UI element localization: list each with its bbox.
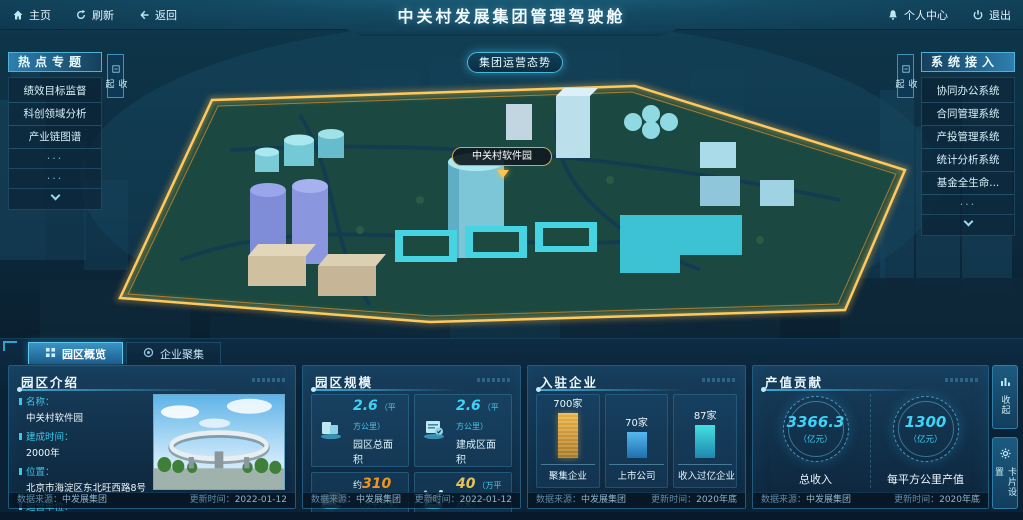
bottom-dashboard: 园区概览 企业聚集 园区介绍 名称：中关村软件园 建成时间：2000年 位置：北…	[0, 338, 1023, 520]
bar-item-clustered: 700家 聚集企业	[536, 394, 600, 488]
bar-item-listed: 70家 上市公司	[605, 394, 669, 488]
gauge-total-revenue: 3366.3 （亿元） 总收入	[761, 394, 870, 488]
back-button[interactable]: 返回	[138, 7, 177, 23]
field-label: 名称：	[19, 394, 147, 408]
bar-blue	[627, 432, 647, 458]
title-underline	[313, 389, 510, 391]
menu-item-contract-mgmt-system[interactable]: 合同管理系统	[922, 103, 1014, 126]
bar-category-label: 聚集企业	[541, 464, 595, 487]
resident-enterprises-panel: 入驻企业 700家 聚集企业 70家 上市公司 87家	[527, 365, 746, 509]
tab-enterprise-cluster[interactable]: 企业聚集	[126, 342, 221, 364]
collapse-label: 收起	[103, 79, 129, 97]
enterprise-bar-chart: 700家 聚集企业 70家 上市公司 87家 收入过亿企业	[536, 394, 737, 488]
card-settings-label: 卡片设置	[992, 467, 1018, 503]
park-scale-panel: 园区规模 2.6（平方公里）园区总面积 2.6（平方公里）建成区面积 约310（…	[302, 365, 521, 509]
back-arrow-icon	[138, 9, 150, 21]
more-items-placeholder[interactable]: ···	[922, 195, 1014, 215]
back-label: 返回	[155, 7, 177, 23]
more-items-placeholder[interactable]: ···	[9, 149, 101, 169]
dashboard-root: 主页 刷新 返回 中关村发展集团管理驾驶舱 个人中心 退出	[0, 0, 1023, 520]
chevron-down-icon	[963, 217, 973, 227]
park-map-label[interactable]: 中关村软件园	[452, 147, 552, 166]
menu-item-industry-chain-map[interactable]: 产业链图谱	[9, 126, 101, 149]
gauge-unit: （亿元）	[798, 433, 832, 445]
header-decoration	[477, 378, 511, 382]
panel-footer: 数据来源：中发展集团 更新时间：2022-01-12	[9, 492, 295, 508]
collapse-label: 收起	[893, 79, 919, 97]
menu-item-industry-invest-system[interactable]: 产投管理系统	[922, 126, 1014, 149]
logout-button[interactable]: 退出	[972, 7, 1011, 23]
bar-cyan	[695, 425, 715, 458]
buildings-icon	[319, 417, 346, 445]
refresh-icon	[75, 9, 87, 21]
ring-icon	[143, 347, 154, 361]
map-3d-scene[interactable]: 集团运营态势 中关村软件园 热点专题 收起 绩效目标监督 科创领域分析 产业链图…	[0, 30, 1023, 338]
park-photo	[153, 394, 285, 490]
home-button[interactable]: 主页	[12, 7, 51, 23]
collapse-label: 收起	[999, 395, 1012, 415]
header-decoration	[945, 378, 979, 382]
home-icon	[12, 9, 24, 21]
system-access-panel: 系统接入 收起 协同办公系统 合同管理系统 产投管理系统 统计分析系统 基金全生…	[897, 52, 1015, 236]
gauge-unit: （亿元）	[908, 433, 942, 445]
menu-item-fund-lifecycle-system[interactable]: 基金全生命...	[922, 172, 1014, 195]
gauge-output-per-sqkm: 1300 （亿元） 每平方公里产值	[870, 394, 980, 488]
panel-footer: 数据来源：中发展集团 更新时间：2022-01-12	[303, 492, 520, 508]
gauge-ring: 1300 （亿元）	[893, 396, 959, 462]
personal-center-label: 个人中心	[904, 7, 948, 23]
bottom-tabs: 园区概览 企业聚集	[28, 342, 221, 364]
system-access-title: 系统接入	[921, 52, 1015, 72]
field-label: 位置：	[19, 464, 147, 478]
stat-card-total-area: 2.6（平方公里）园区总面积	[311, 394, 409, 467]
map-pin-icon	[497, 170, 509, 184]
gear-icon	[1000, 444, 1011, 463]
personal-center-button[interactable]: 个人中心	[887, 7, 948, 23]
bar-chart-icon	[1000, 372, 1011, 391]
gauge-ring: 3366.3 （亿元）	[783, 396, 849, 462]
refresh-label: 刷新	[92, 7, 114, 23]
field-label: 建成时间：	[19, 429, 147, 443]
menu-item-collab-office-system[interactable]: 协同办公系统	[922, 80, 1014, 103]
power-icon	[972, 9, 984, 21]
menu-item-performance-goals[interactable]: 绩效目标监督	[9, 80, 101, 103]
gauge-value: 1300	[905, 413, 947, 431]
expand-more-button[interactable]	[922, 215, 1014, 231]
group-operation-status-button[interactable]: 集团运营态势	[467, 52, 563, 73]
field-value: 中关村软件园	[26, 410, 147, 424]
title-underline	[538, 389, 735, 391]
output-value-panel: 产值贡献 3366.3 （亿元） 总收入 1300 （亿元）	[752, 365, 989, 509]
header-decoration	[252, 378, 286, 382]
bar-category-label: 收入过亿企业	[678, 464, 732, 487]
collapse-icon	[112, 58, 120, 77]
city-map-graphic	[0, 30, 1023, 338]
gauge-label: 总收入	[799, 471, 832, 487]
expand-more-button[interactable]	[9, 189, 101, 205]
bar-gold	[558, 413, 578, 458]
panel-footer: 数据来源：中发展集团 更新时间：2020年底	[753, 492, 988, 508]
bar-value-label: 70家	[625, 414, 648, 429]
hot-topics-collapse-button[interactable]: 收起	[107, 54, 124, 98]
bar-item-over-100m: 87家 收入过亿企业	[673, 394, 737, 488]
app-title: 中关村发展集团管理驾驶舱	[397, 3, 625, 27]
menu-item-scitech-analysis[interactable]: 科创领域分析	[9, 103, 101, 126]
card-settings-button[interactable]: 卡片设置	[992, 437, 1018, 509]
home-label: 主页	[29, 7, 51, 23]
top-bar: 主页 刷新 返回 中关村发展集团管理驾驶舱 个人中心 退出	[0, 0, 1023, 30]
collapse-icon	[902, 58, 910, 77]
hot-topics-title: 热点专题	[8, 52, 102, 72]
bell-icon	[887, 9, 899, 21]
gauge-value: 3366.3	[787, 413, 845, 431]
tab-park-overview[interactable]: 园区概览	[28, 342, 123, 364]
panels-collapse-button[interactable]: 收起	[992, 365, 1018, 429]
bar-category-label: 上市公司	[609, 464, 663, 487]
stat-panels-row: 园区介绍 名称：中关村软件园 建成时间：2000年 位置：北京市海淀区东北旺西路…	[8, 365, 989, 509]
system-access-collapse-button[interactable]: 收起	[897, 54, 914, 98]
tab-label: 企业聚集	[160, 346, 204, 362]
title-underline	[763, 389, 978, 391]
bar-value-label: 700家	[553, 395, 582, 410]
park-intro-panel: 园区介绍 名称：中关村软件园 建成时间：2000年 位置：北京市海淀区东北旺西路…	[8, 365, 296, 509]
header-decoration	[702, 378, 736, 382]
gauge-label: 每平方公里产值	[887, 471, 964, 487]
menu-item-stat-analysis-system[interactable]: 统计分析系统	[922, 149, 1014, 172]
stat-card-built-area: 2.6（平方公里）建成区面积	[414, 394, 512, 467]
side-button-column: 收起 卡片设置	[992, 365, 1018, 509]
bottom-strip	[0, 512, 1023, 520]
corner-accent	[3, 341, 17, 351]
panel-footer: 数据来源：中发展集团 更新时间：2020年底	[528, 492, 745, 508]
tab-label: 园区概览	[62, 346, 106, 362]
more-items-placeholder[interactable]: ···	[9, 169, 101, 189]
bar-value-label: 87家	[694, 407, 717, 422]
logout-label: 退出	[989, 7, 1011, 23]
hot-topics-panel: 热点专题 收起 绩效目标监督 科创领域分析 产业链图谱 ··· ···	[8, 52, 126, 210]
refresh-button[interactable]: 刷新	[75, 7, 114, 23]
park-info-fields: 名称：中关村软件园 建成时间：2000年 位置：北京市海淀区东北旺西路8号 运营…	[19, 394, 147, 490]
field-value: 2000年	[26, 445, 147, 459]
title-underline	[19, 389, 285, 391]
document-check-icon	[422, 417, 449, 445]
chevron-down-icon	[50, 191, 60, 201]
grid-icon	[45, 347, 56, 361]
